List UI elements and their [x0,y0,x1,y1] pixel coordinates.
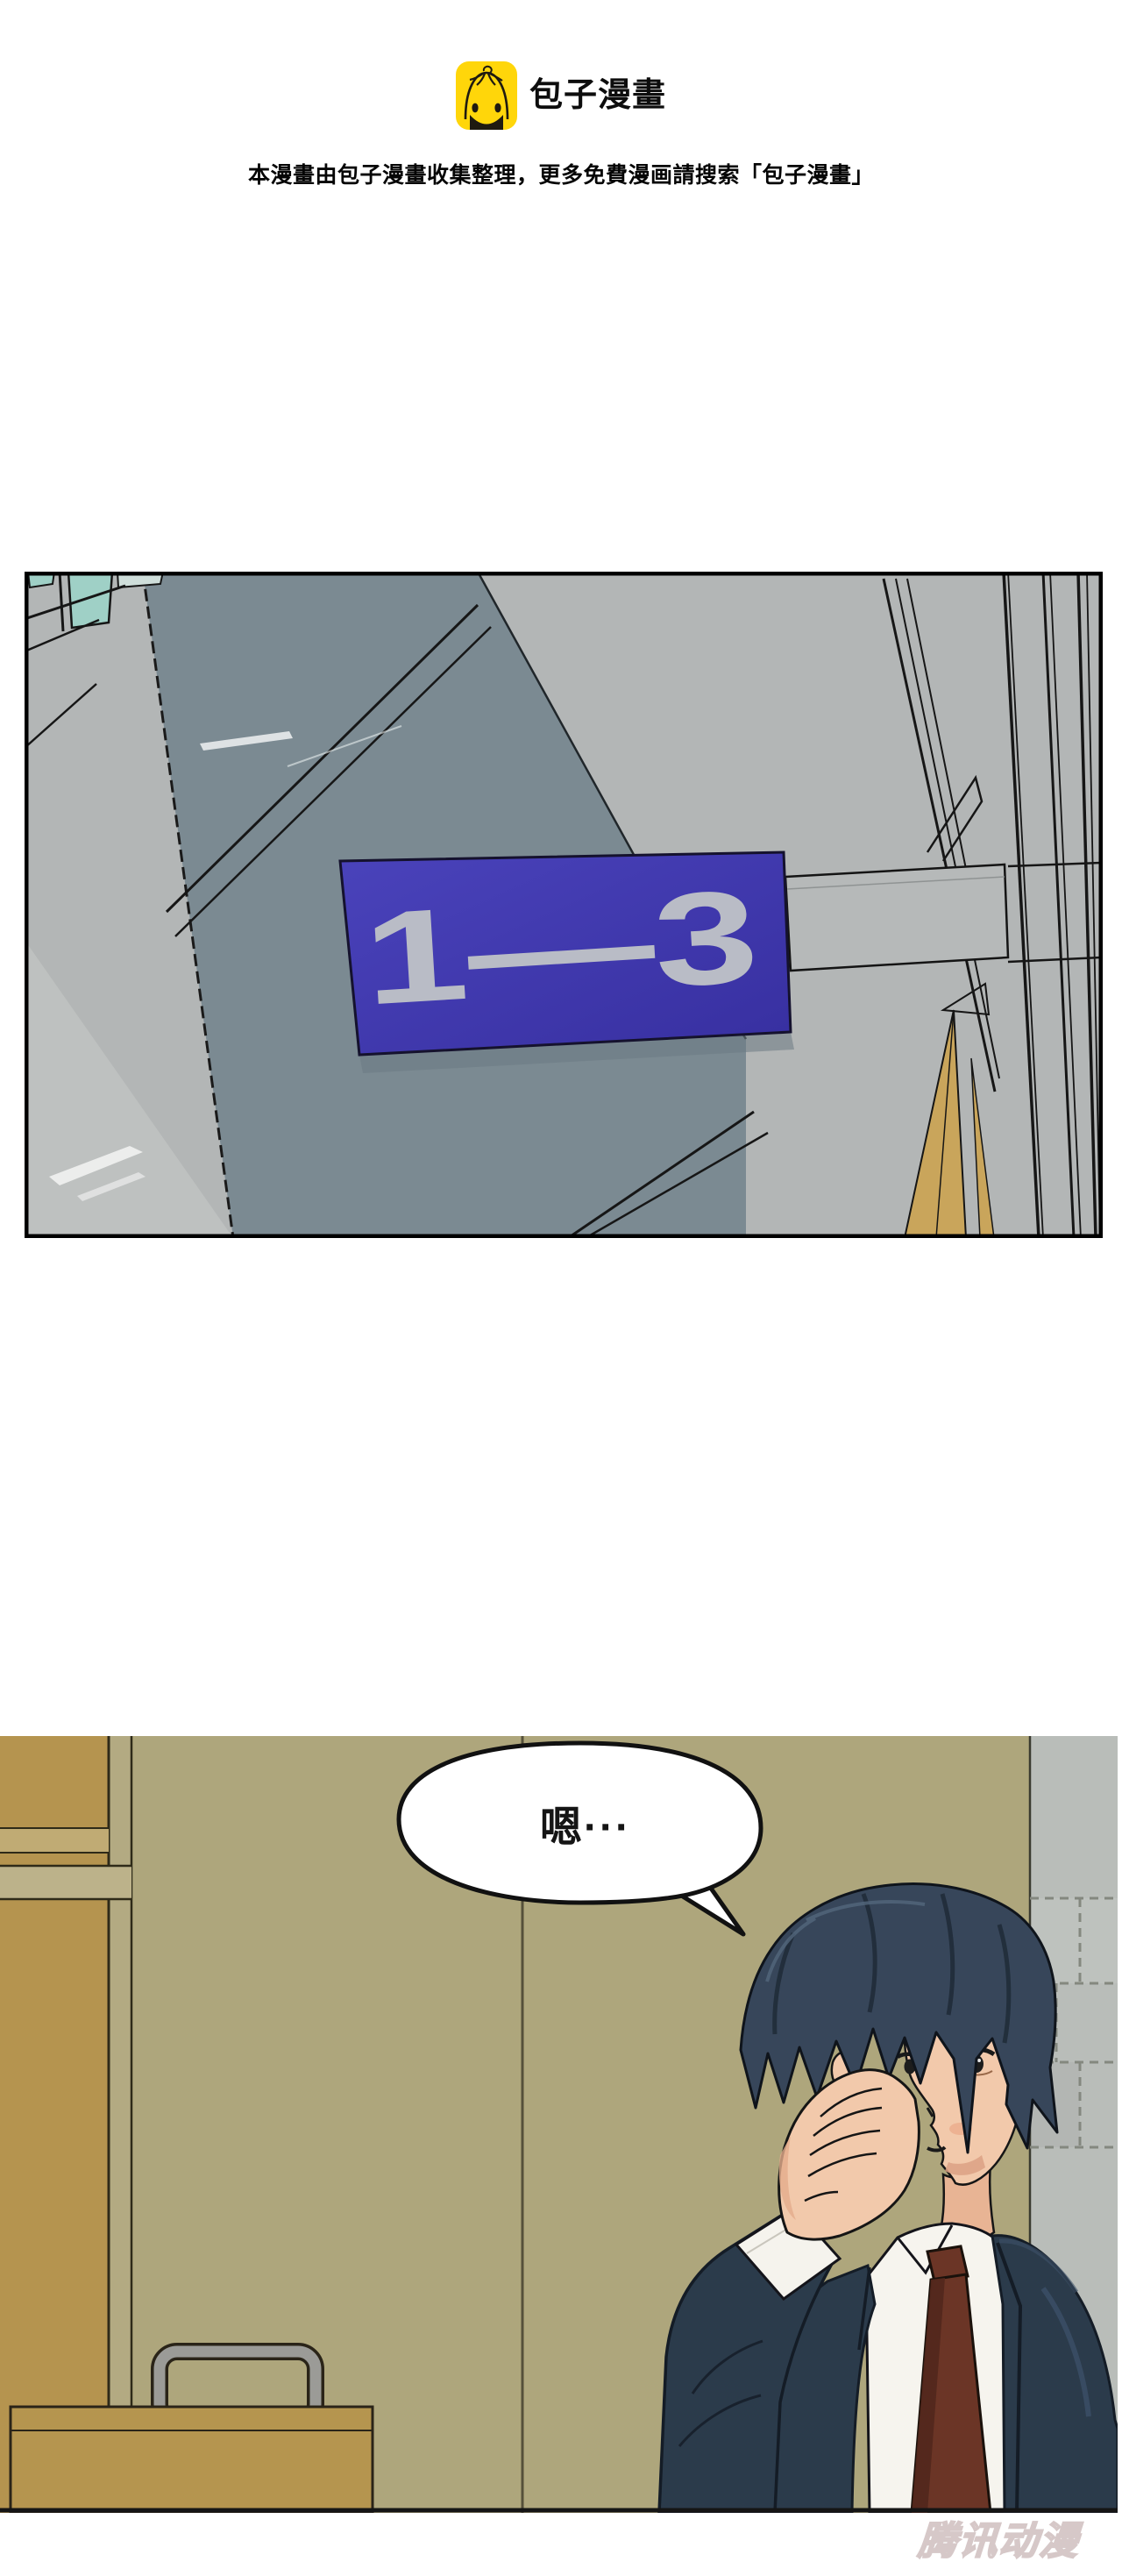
sign-bracket [785,865,1008,971]
cabinet [0,1736,131,2513]
brand-title: 包子漫畫 [529,61,666,130]
watermark-text: 腾讯动漫 [917,2509,1118,2565]
comic-panel-hallway: 1—3 [25,572,1103,1238]
comic-page: 包子漫畫 本漫畫由包子漫畫收集整理，更多免費漫画請搜索「包子漫畫」 [0,0,1122,2576]
baozi-bun-face-icon [456,61,517,130]
collection-notice: 本漫畫由包子漫畫收集整理，更多免費漫画請搜索「包子漫畫」 [0,158,1122,189]
comic-panel-character: 嗯··· [0,1736,1118,2513]
speech-text: 嗯··· [540,1804,631,1851]
room-sign-text: 1—3 [359,862,762,1033]
window [68,572,112,628]
brand-header: 包子漫畫 [0,61,1122,130]
